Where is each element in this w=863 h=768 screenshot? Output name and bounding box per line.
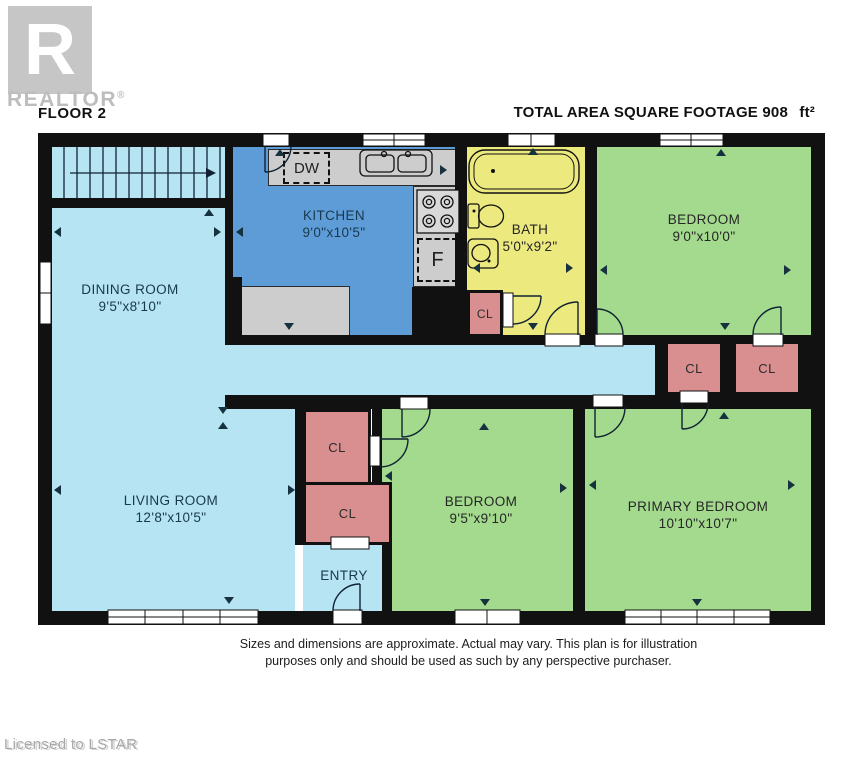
- arrow-up-icon: [204, 209, 214, 216]
- wall-hall-bottom: [225, 395, 655, 409]
- arrow-right-icon: [440, 165, 447, 175]
- arrow-down-icon: [218, 407, 228, 414]
- floor-label: FLOOR 2: [38, 105, 107, 122]
- label-bedroom-mid: BEDROOM9'5"x9'10": [445, 493, 518, 527]
- closet-bedroom-upper: CL: [303, 409, 371, 485]
- wall-kitchen-bath: [455, 147, 467, 345]
- disclaimer: Sizes and dimensions are approximate. Ac…: [75, 636, 862, 670]
- arrow-right-icon: [784, 265, 791, 275]
- room-staircase: [52, 147, 225, 198]
- arrow-up-icon: [719, 412, 729, 419]
- label-living: LIVING ROOM12'8"x10'5": [124, 492, 218, 526]
- arrow-down-icon: [720, 323, 730, 330]
- license-note: Licensed to LSTAR: [4, 736, 137, 753]
- arrow-down-icon: [528, 323, 538, 330]
- wall-outer-right: [811, 133, 825, 625]
- arrow-right-icon: [560, 483, 567, 493]
- wall-outer-left: [38, 133, 52, 625]
- arrow-right-icon: [566, 263, 573, 273]
- closet-bedroom-lower: CL: [303, 482, 392, 545]
- closet-bath: CL: [467, 290, 503, 337]
- wall-outer-bottom: [38, 611, 825, 625]
- registered-mark: ®: [117, 90, 126, 101]
- arrow-up-icon: [528, 148, 538, 155]
- wall-outer-top: [38, 133, 825, 147]
- dishwasher: DW: [283, 152, 330, 184]
- arrow-left-icon: [54, 227, 61, 237]
- label-kitchen: KITCHEN9'0"x10'5": [302, 207, 365, 241]
- wall-closet-right: [801, 335, 811, 405]
- closet-hall-right: CL: [733, 341, 801, 395]
- arrow-up-icon: [275, 149, 285, 156]
- disclaimer-line-1: Sizes and dimensions are approximate. Ac…: [75, 636, 862, 653]
- arrow-right-icon: [214, 227, 221, 237]
- floor-plan: DW F CL CL CL CL CL: [38, 133, 825, 625]
- kitchen-island: [240, 286, 350, 338]
- arrow-right-icon: [288, 485, 295, 495]
- wall-closet-bedroom: [372, 409, 382, 485]
- label-bedroom-top: BEDROOM9'0"x10'0": [668, 211, 741, 245]
- label-bath: BATH5'0"x9'2": [502, 221, 557, 255]
- disclaimer-line-2: purposes only and should be used as such…: [75, 653, 862, 670]
- arrow-left-icon: [600, 265, 607, 275]
- arrow-down-icon: [480, 599, 490, 606]
- arrow-left-icon: [589, 480, 596, 490]
- wall-bedroom-primary: [573, 409, 585, 611]
- label-primary-bedroom: PRIMARY BEDROOM10'10"x10'7": [628, 498, 769, 532]
- arrow-down-icon: [224, 597, 234, 604]
- wall-living-closets: [295, 405, 303, 545]
- arrow-up-icon: [716, 149, 726, 156]
- arrow-left-icon: [473, 263, 480, 273]
- wall-bath-bedroom: [585, 147, 597, 335]
- room-dining-living: [52, 208, 225, 611]
- label-dining: DINING ROOM9'5"x8'10": [81, 281, 178, 315]
- arrow-up-icon: [218, 422, 228, 429]
- label-entry: ENTRY: [320, 567, 368, 584]
- arrow-left-icon: [236, 227, 243, 237]
- realtor-logo: R: [8, 6, 92, 94]
- arrow-left-icon: [385, 471, 392, 481]
- arrow-right-icon: [788, 480, 795, 490]
- arrow-left-icon: [54, 485, 61, 495]
- wall-closet-divider: [723, 341, 733, 397]
- arrow-down-icon: [692, 599, 702, 606]
- wall-entry-bedroom: [382, 545, 392, 611]
- wall-hall-end: [655, 335, 665, 405]
- realtor-logo-letter: R: [24, 14, 76, 86]
- room-hallway: [225, 345, 655, 395]
- fridge: F: [417, 238, 458, 282]
- arrow-down-icon: [284, 323, 294, 330]
- closet-hall-left: CL: [665, 341, 723, 395]
- wall-stairs-bottom: [52, 198, 233, 208]
- total-area-label: TOTAL AREA SQUARE FOOTAGE 908 ft²: [514, 104, 815, 121]
- arrow-up-icon: [479, 423, 489, 430]
- wall-dining-kitchen: [225, 147, 233, 345]
